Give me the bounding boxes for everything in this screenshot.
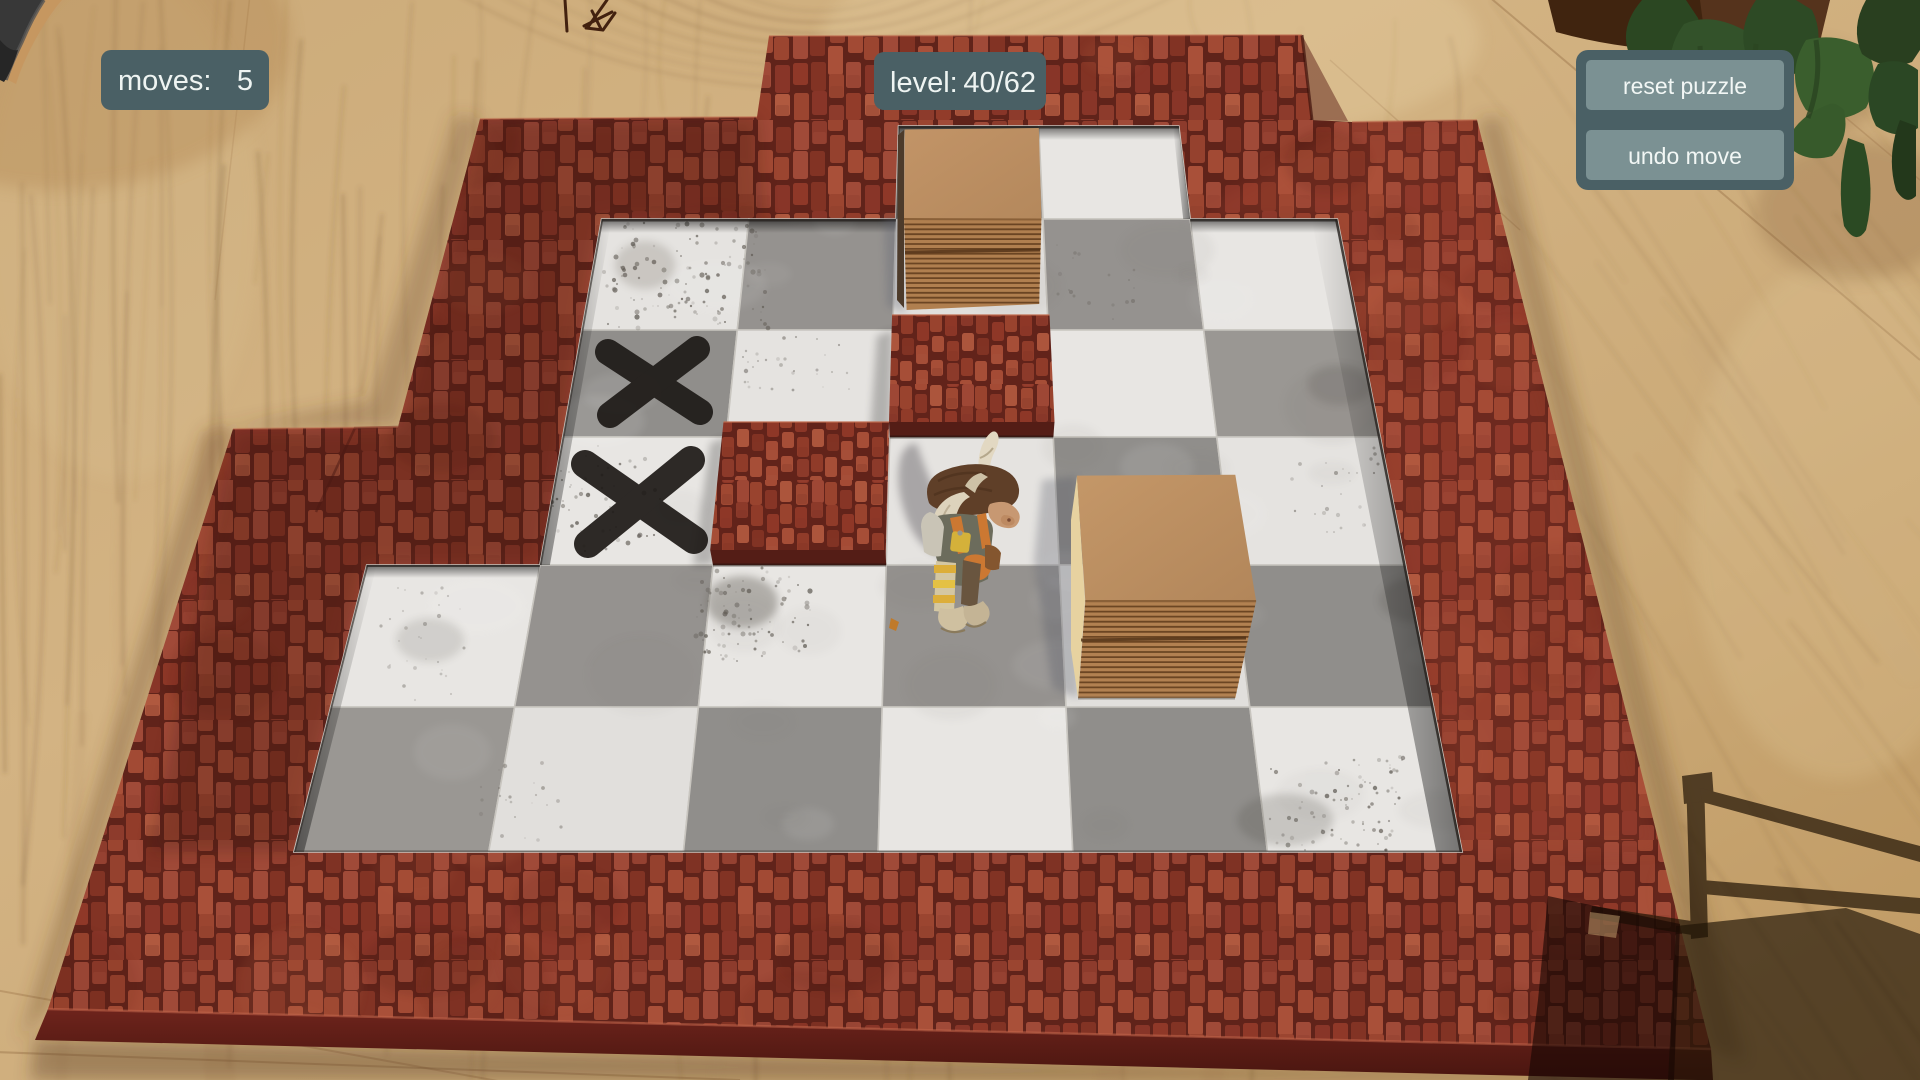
svg-text:level:: level: <box>890 67 958 99</box>
svg-text:40/62: 40/62 <box>963 67 1036 99</box>
svg-text:5: 5 <box>237 65 253 97</box>
svg-text:reset puzzle: reset puzzle <box>1623 73 1747 99</box>
svg-text:moves:: moves: <box>118 65 211 97</box>
svg-text:undo move: undo move <box>1628 143 1742 169</box>
